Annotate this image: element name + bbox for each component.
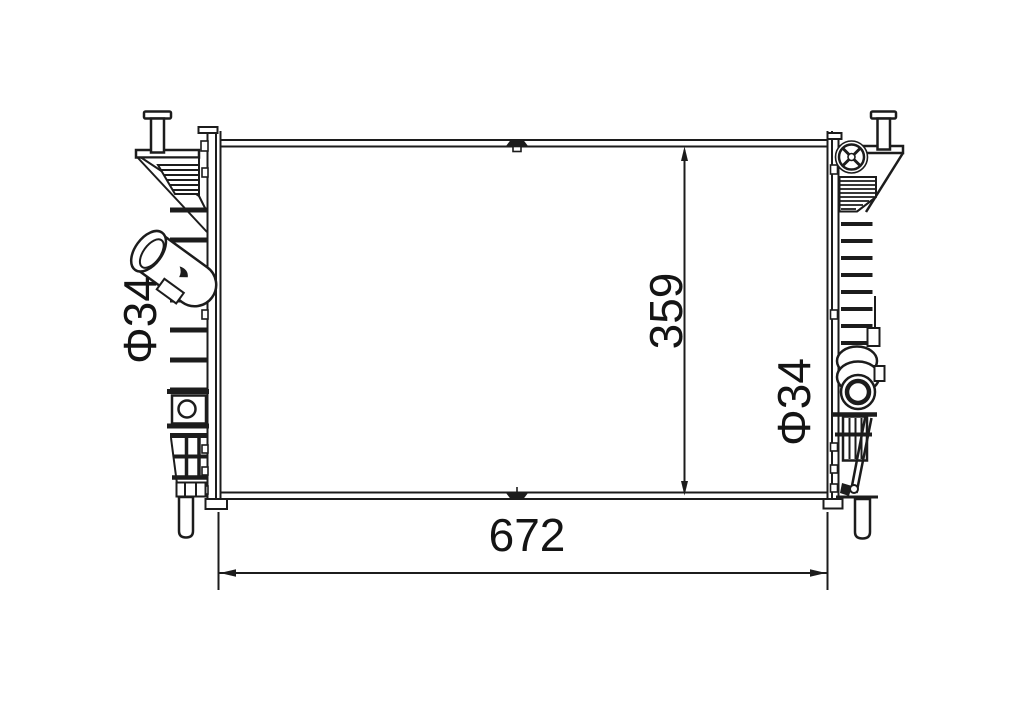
arrow-left-icon [220,569,236,577]
outlet-pipe [837,347,885,410]
lower-bracket-right [833,413,878,497]
filler-cap [836,141,868,173]
pipe-clamp-tab [875,366,885,381]
inlet-diameter-label: Φ34 [114,276,166,364]
drain-plug [167,392,209,427]
dimension-height: 359 [640,147,692,496]
bracket-top-left [136,150,207,232]
left-tank-foot [206,499,228,509]
drawing-canvas: 359 672 Φ34 Φ34 [0,0,1009,717]
mounting-pin-bottom-right [855,499,870,539]
radiator-technical-drawing: 359 672 Φ34 Φ34 [0,0,1009,717]
arrow-right-icon [810,569,826,577]
mounting-pin-top-left [144,112,171,153]
mounting-pin-top-right [871,112,896,150]
dimension-width: 672 [219,509,828,590]
width-dimension-label: 672 [489,509,566,561]
height-dimension-label: 359 [640,273,692,350]
mounting-pin-bottom-left [179,497,193,538]
outlet-diameter-label: Φ34 [768,358,820,446]
arrow-up-icon [681,147,688,162]
right-tank-foot [824,499,843,509]
radiator-core [220,140,828,500]
